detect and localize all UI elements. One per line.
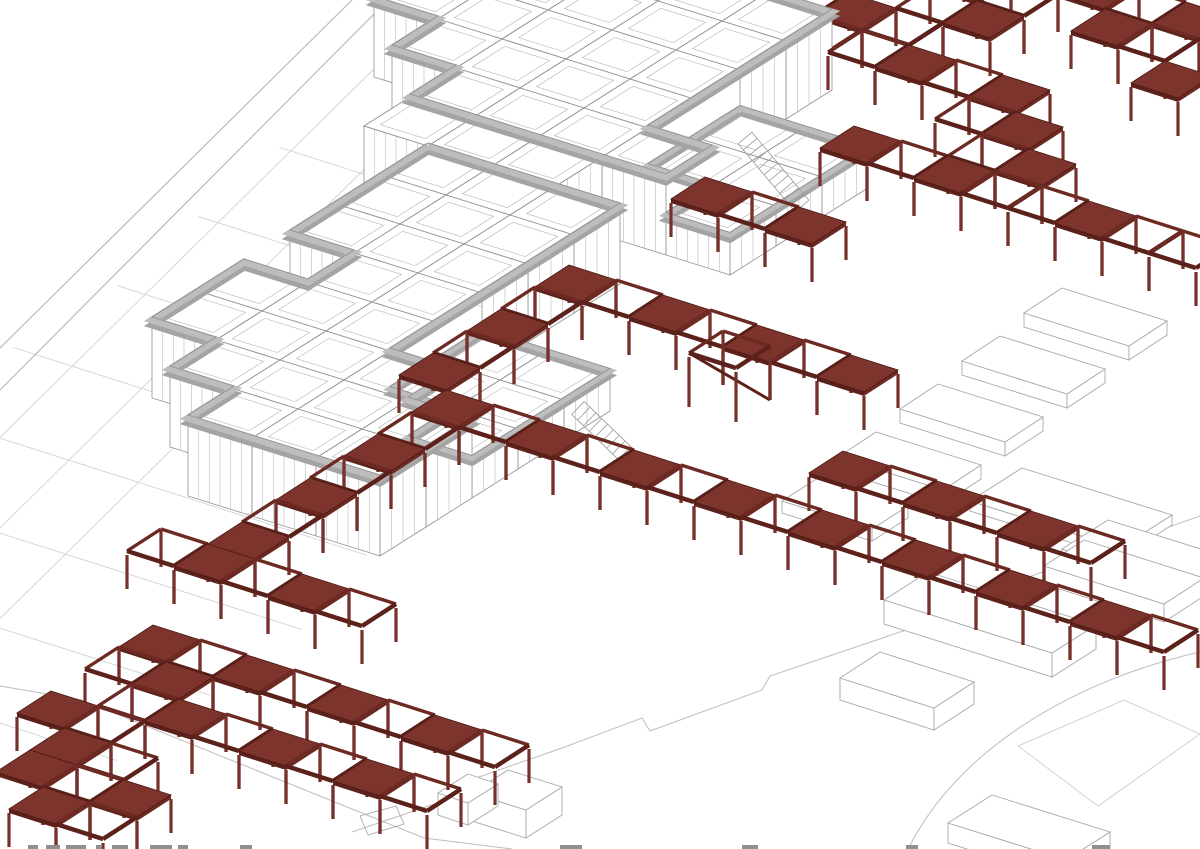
drawing-canvas <box>0 0 1200 849</box>
axonometric-drawing <box>0 0 1200 849</box>
